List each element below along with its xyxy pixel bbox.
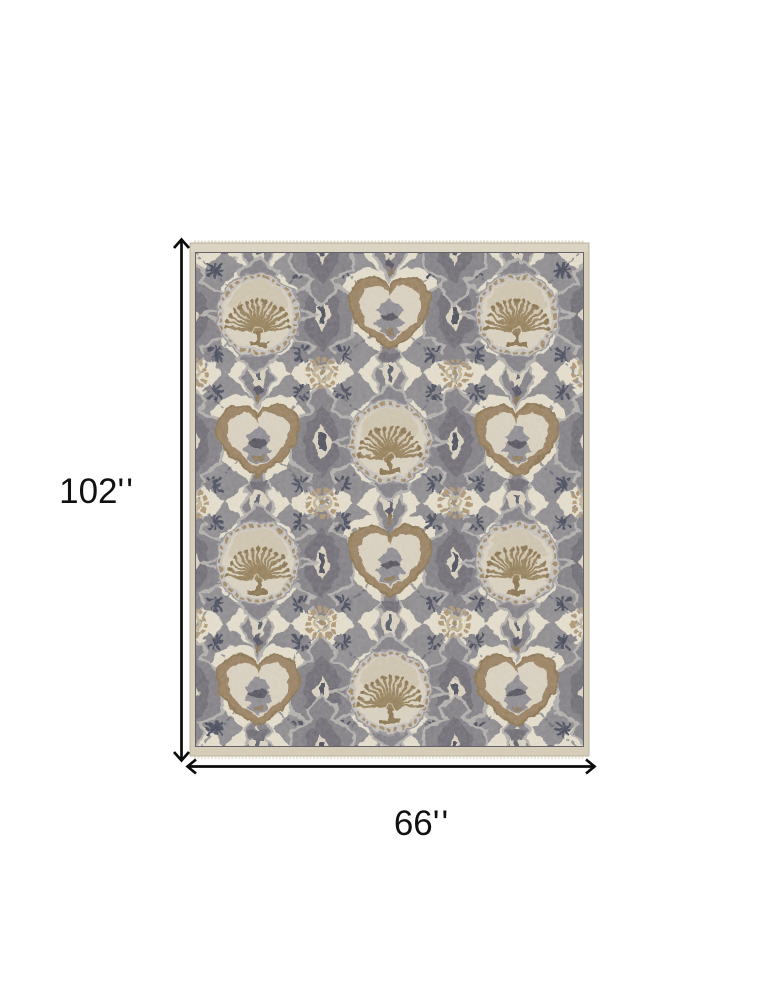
svg-text:66'': 66'': [394, 804, 450, 843]
svg-text:102'': 102'': [59, 472, 135, 511]
